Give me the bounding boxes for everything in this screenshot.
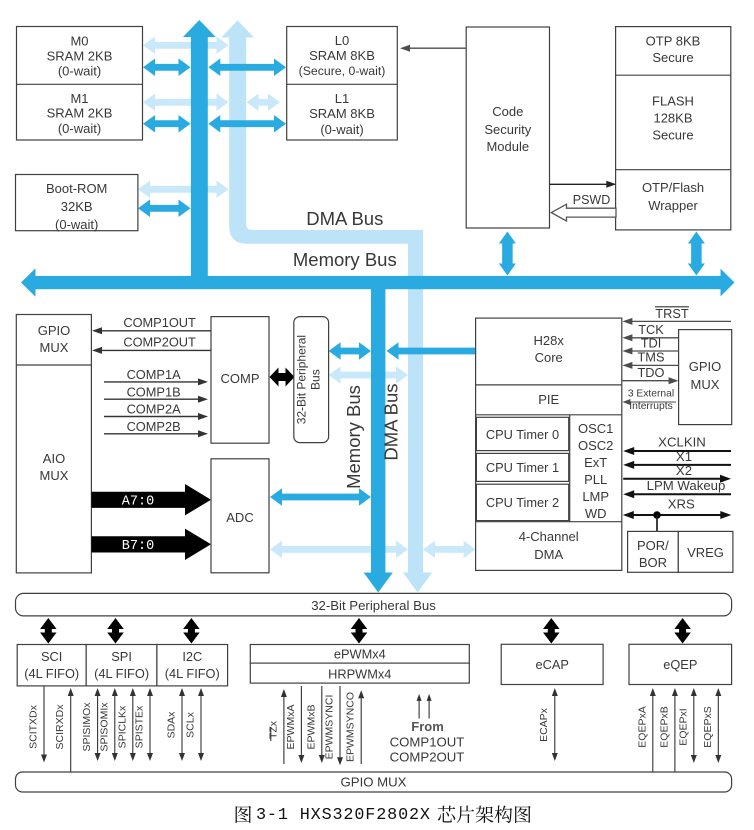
svg-text:Memory Bus: Memory Bus	[343, 385, 364, 489]
svg-text:(4L FIFO): (4L FIFO)	[24, 666, 79, 681]
svg-text:32-Bit Peripheral Bus: 32-Bit Peripheral Bus	[311, 598, 436, 613]
svg-text:EPWMSYNCO: EPWMSYNCO	[345, 692, 357, 762]
svg-text:A7:0: A7:0	[122, 495, 154, 510]
svg-text:TRST: TRST	[655, 306, 689, 321]
svg-text:EQEPxB: EQEPxB	[658, 706, 670, 747]
svg-text:OSC1: OSC1	[578, 421, 613, 436]
svg-text:FLASH: FLASH	[652, 94, 694, 109]
svg-text:X2: X2	[676, 463, 692, 478]
svg-text:ePWMx4: ePWMx4	[334, 647, 386, 662]
svg-text:Secure: Secure	[652, 128, 693, 143]
svg-text:Memory Bus: Memory Bus	[293, 249, 397, 270]
svg-text:GPIO MUX: GPIO MUX	[341, 775, 407, 790]
svg-text:COMP1B: COMP1B	[127, 384, 181, 399]
svg-text:CPU Timer 1: CPU Timer 1	[486, 460, 559, 475]
svg-text:4-Channel: 4-Channel	[519, 529, 579, 544]
svg-text:SPICLKx: SPICLKx	[116, 705, 128, 748]
svg-text:COMP1A: COMP1A	[127, 367, 182, 382]
svg-text:Core: Core	[535, 350, 563, 365]
svg-text:ECAPx: ECAPx	[538, 707, 550, 742]
svg-text:COMP2B: COMP2B	[127, 419, 181, 434]
svg-text:H28x: H28x	[534, 333, 565, 348]
svg-text:EQEPxA: EQEPxA	[636, 706, 648, 747]
svg-text:(0-wait): (0-wait)	[55, 217, 98, 232]
svg-text:SRAM 2KB: SRAM 2KB	[47, 106, 113, 121]
svg-text:CPU Timer 2: CPU Timer 2	[486, 495, 559, 510]
svg-text:WD: WD	[585, 506, 607, 521]
svg-text:XRS: XRS	[668, 497, 695, 512]
svg-text:SRAM 2KB: SRAM 2KB	[47, 49, 113, 64]
svg-text:ADC: ADC	[226, 510, 253, 525]
svg-text:eCAP: eCAP	[535, 657, 568, 672]
svg-text:OTP 8KB: OTP 8KB	[646, 34, 701, 49]
svg-text:EQEPxS: EQEPxS	[702, 706, 714, 747]
svg-text:MUX: MUX	[691, 377, 720, 392]
svg-text:SCIRXDx: SCIRXDx	[54, 704, 66, 750]
svg-text:TDO: TDO	[637, 365, 664, 380]
svg-text:SCI: SCI	[41, 649, 62, 664]
svg-text:M1: M1	[70, 91, 88, 106]
svg-text:COMP1OUT: COMP1OUT	[123, 315, 196, 330]
svg-text:X1: X1	[676, 449, 692, 464]
svg-text:(Secure, 0-wait): (Secure, 0-wait)	[299, 64, 386, 78]
svg-text:GPIO: GPIO	[689, 359, 722, 374]
svg-text:Secure: Secure	[652, 50, 693, 65]
svg-text:Interrupts: Interrupts	[629, 401, 673, 412]
svg-text:32-Bit Peripheral: 32-Bit Peripheral	[295, 335, 309, 424]
svg-text:AIO: AIO	[43, 451, 65, 466]
svg-text:Boot-ROM: Boot-ROM	[46, 181, 107, 196]
svg-text:128KB: 128KB	[653, 111, 692, 126]
svg-text:PSWD: PSWD	[573, 193, 611, 207]
svg-text:(0-wait): (0-wait)	[320, 122, 363, 137]
svg-text:HRPWMx4: HRPWMx4	[328, 667, 391, 682]
svg-text:SCITXDx: SCITXDx	[28, 704, 40, 749]
svg-text:COMP: COMP	[221, 371, 260, 386]
svg-text:SPISIMOx: SPISIMOx	[81, 702, 93, 752]
svg-text:EPWMSYNCI: EPWMSYNCI	[324, 695, 336, 760]
svg-text:Bus: Bus	[309, 369, 323, 390]
svg-text:CPU Timer 0: CPU Timer 0	[486, 427, 559, 442]
svg-text:(0-wait): (0-wait)	[58, 121, 101, 136]
svg-text:MUX: MUX	[40, 340, 69, 355]
svg-text:LPM Wakeup: LPM Wakeup	[647, 478, 726, 493]
svg-text:3-1 HXS320F2802X: 3-1 HXS320F2802X	[256, 806, 430, 825]
svg-text:VREG: VREG	[687, 545, 724, 560]
svg-text:EQEPxI: EQEPxI	[677, 708, 689, 745]
svg-text:Security: Security	[484, 122, 531, 137]
svg-text:(4L FIFO): (4L FIFO)	[165, 666, 220, 681]
svg-text:SPISOMIx: SPISOMIx	[98, 702, 110, 752]
svg-text:COMP2OUT: COMP2OUT	[123, 335, 196, 350]
svg-text:DMA: DMA	[534, 547, 563, 562]
svg-text:SPI: SPI	[111, 649, 132, 664]
svg-text:TDI: TDI	[641, 336, 662, 351]
svg-text:EPWMxB: EPWMxB	[305, 705, 317, 750]
svg-text:COMP2OUT: COMP2OUT	[390, 750, 465, 765]
svg-text:EPWMxA: EPWMxA	[285, 705, 297, 750]
svg-text:COMP2A: COMP2A	[127, 402, 182, 417]
svg-text:eQEP: eQEP	[663, 657, 697, 672]
svg-text:3 External: 3 External	[628, 389, 674, 400]
svg-text:(4L FIFO): (4L FIFO)	[94, 666, 149, 681]
svg-text:GPIO: GPIO	[38, 323, 71, 338]
svg-text:L0: L0	[335, 33, 349, 48]
svg-text:I2C: I2C	[182, 649, 202, 664]
svg-text:B7:0: B7:0	[122, 539, 154, 554]
svg-text:ExT: ExT	[584, 455, 607, 470]
svg-text:PIE: PIE	[538, 392, 559, 407]
svg-text:Wrapper: Wrapper	[648, 198, 698, 213]
svg-text:(0-wait): (0-wait)	[58, 64, 101, 79]
svg-text:DMA Bus: DMA Bus	[381, 383, 402, 460]
svg-text:SCLx: SCLx	[185, 711, 197, 737]
svg-text:BOR: BOR	[639, 555, 667, 570]
svg-text:OTP/Flash: OTP/Flash	[642, 180, 704, 195]
svg-text:SRAM 8KB: SRAM 8KB	[309, 106, 375, 121]
svg-text:LMP: LMP	[582, 489, 609, 504]
svg-text:XCLKIN: XCLKIN	[658, 435, 706, 450]
svg-text:POR/: POR/	[637, 538, 669, 553]
svg-text:COMP1OUT: COMP1OUT	[390, 735, 465, 750]
svg-text:32KB: 32KB	[61, 199, 93, 214]
svg-text:SDAx: SDAx	[166, 711, 178, 739]
svg-text:Module: Module	[486, 139, 529, 154]
svg-text:TZx: TZx	[268, 720, 280, 739]
svg-text:Code: Code	[492, 104, 523, 119]
svg-text:DMA Bus: DMA Bus	[306, 208, 383, 229]
svg-text:OSC2: OSC2	[578, 438, 613, 453]
svg-text:L1: L1	[335, 91, 349, 106]
svg-text:MUX: MUX	[40, 468, 69, 483]
svg-text:SRAM 8KB: SRAM 8KB	[309, 48, 375, 63]
svg-text:PLL: PLL	[584, 472, 607, 487]
svg-text:TMS: TMS	[637, 350, 664, 365]
svg-text:SPISTEx: SPISTEx	[134, 705, 146, 748]
svg-text:M0: M0	[70, 34, 88, 49]
svg-text:From: From	[411, 719, 444, 734]
